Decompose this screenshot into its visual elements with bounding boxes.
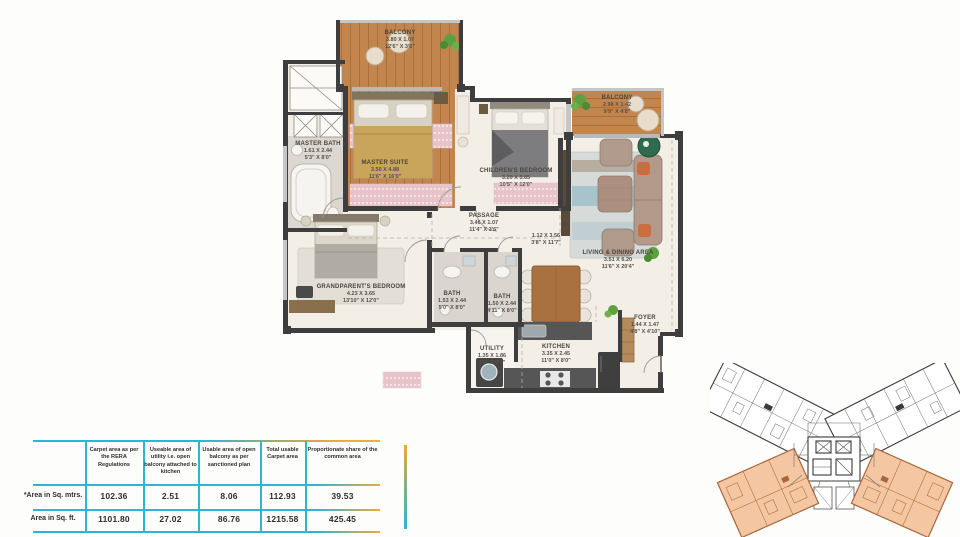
key-plan — [710, 363, 960, 537]
key-plan-highlight-left — [717, 449, 818, 537]
row-label-sq-ft: Area in Sq. ft. — [21, 515, 85, 522]
bathtub — [291, 164, 331, 222]
page: BALCONY3.80 X 1.0712'6" X 3'6" MASTER BA… — [0, 0, 960, 537]
col-header-total-area: Total usable Carpet area — [260, 442, 305, 462]
value-balcony-sqft: 86.76 — [198, 514, 260, 524]
value-carpet-sqft: 1101.80 — [85, 514, 143, 524]
room-label-bath-2: BATH1.50 X 2.444'11" X 8'0" — [487, 294, 517, 314]
value-carpet-sqm: 102.36 — [85, 491, 143, 501]
room-label-utility: UTILITY1.35 X 1.864'5" X 6'1" — [478, 346, 506, 366]
dining-set — [521, 266, 591, 322]
room-label-bath-1: BATH1.53 X 2.445'0" X 8'0" — [438, 291, 466, 311]
room-label-grandparents-bedroom: GRANDPARENT'S BEDROOM4.23 X 3.6513'10" X… — [317, 284, 406, 304]
value-total-sqft: 1215.58 — [260, 514, 305, 524]
room-label-foyer: FOYER1.44 X 1.474'8" X 4'10" — [630, 315, 660, 335]
room-label-childrens-bedroom: CHILDREN'S BEDROOM3.20 X 3.6510'5" X 12'… — [479, 168, 552, 188]
room-label-balcony-right: BALCONY2.98 X 1.429'9" X 4'8" — [601, 95, 632, 115]
area-table: Carpet area as per the RERA Regulations … — [33, 440, 380, 532]
value-utility-sqm: 2.51 — [143, 491, 198, 501]
value-common-sqm: 39.53 — [305, 491, 380, 501]
value-common-sqft: 425.45 — [305, 514, 380, 524]
col-header-balcony-area: Usable area of open balcony as per sanct… — [198, 442, 260, 469]
room-label-master-bath: MASTER BATH1.61 X 2.445'3" X 8'0" — [295, 141, 340, 161]
value-utility-sqft: 27.02 — [143, 514, 198, 524]
room-label-master-suite: MASTER SUITE3.50 X 4.8811'6" X 16'0" — [361, 160, 408, 180]
room-label-balcony-top: BALCONY3.80 X 1.0712'6" X 3'6" — [384, 30, 415, 50]
key-plan-highlight-right — [851, 449, 952, 537]
value-total-sqm: 112.93 — [260, 491, 305, 501]
row-label-sq-mtrs: *Area in Sq. mtrs. — [21, 492, 85, 499]
room-label-living-dining: LIVING & DINING AREA3.51 X 6.2011'6" X 2… — [582, 250, 653, 270]
value-balcony-sqm: 8.06 — [198, 491, 260, 501]
col-header-utility-area: Useable area of utility i.e. open balcon… — [143, 442, 198, 476]
desk-chair — [296, 286, 313, 298]
col-header-carpet-area: Carpet area as per the RERA Regulations — [85, 442, 143, 469]
shaft-boxes — [290, 66, 343, 137]
gradient-divider — [404, 445, 407, 529]
room-label-passage: PASSAGE3.46 X 1.0711'4" X 3'6" — [469, 213, 499, 233]
room-label-inner-passage: 1.12 X 3.563'8" X 11'7" — [531, 233, 561, 246]
room-label-kitchen: KITCHEN3.35 X 2.4511'0" X 8'0" — [541, 344, 571, 364]
col-header-common-area: Proportionate share of the common area — [305, 442, 380, 462]
